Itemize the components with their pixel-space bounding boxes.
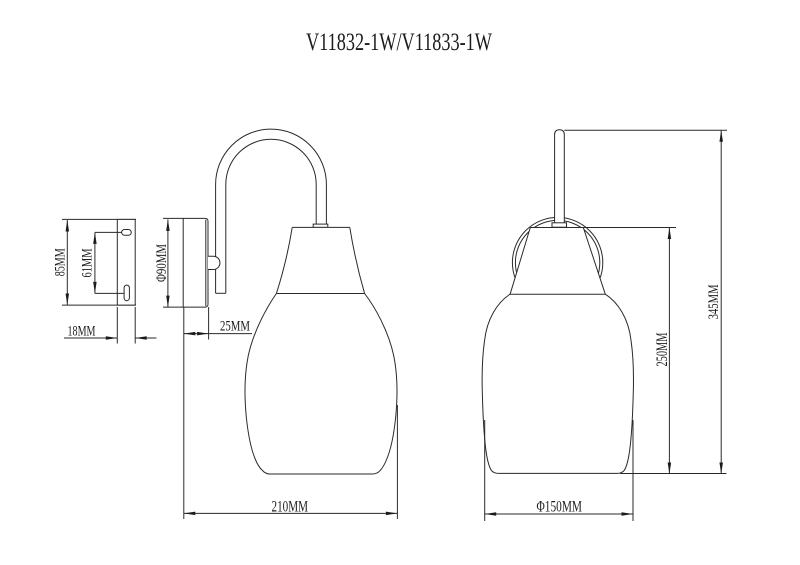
svg-text:85MM: 85MM	[52, 248, 68, 276]
svg-text:25MM: 25MM	[220, 319, 250, 335]
svg-text:V11832-1W/V11833-1W: V11832-1W/V11833-1W	[306, 29, 492, 56]
svg-text:18MM: 18MM	[68, 324, 96, 340]
svg-text:61MM: 61MM	[79, 249, 95, 278]
svg-text:210MM: 210MM	[272, 499, 309, 516]
svg-text:345MM: 345MM	[706, 284, 722, 319]
svg-text:Φ150MM: Φ150MM	[537, 498, 583, 515]
svg-text:250MM: 250MM	[654, 333, 671, 367]
svg-text:Φ90MM: Φ90MM	[154, 244, 170, 282]
